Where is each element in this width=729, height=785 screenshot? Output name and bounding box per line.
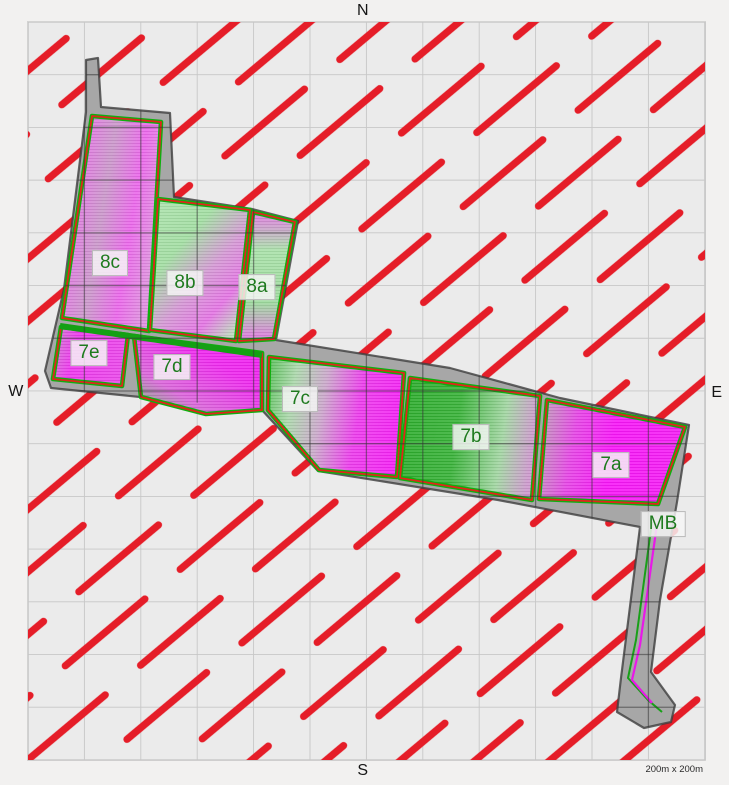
field-map-view: N S W E 200m x 200m 8c8b8a7e7d7c7b7aMB	[0, 0, 729, 785]
field-label-7c[interactable]: 7c	[282, 386, 318, 412]
field-label-7e[interactable]: 7e	[70, 340, 107, 366]
field-label-MB[interactable]: MB	[641, 511, 686, 537]
compass-west-label: W	[8, 384, 24, 400]
field-label-7a[interactable]: 7a	[592, 452, 629, 478]
field-label-7d[interactable]: 7d	[153, 354, 190, 380]
field-label-8a[interactable]: 8a	[238, 274, 275, 300]
field-label-8c[interactable]: 8c	[92, 250, 128, 276]
grid-scale-note: 200m x 200m	[645, 764, 703, 775]
compass-south-label: S	[357, 763, 368, 779]
map-canvas[interactable]	[0, 0, 729, 785]
compass-east-label: E	[711, 385, 722, 401]
compass-north-label: N	[357, 3, 369, 19]
field-label-8b[interactable]: 8b	[166, 270, 203, 296]
field-label-7b[interactable]: 7b	[452, 424, 489, 450]
